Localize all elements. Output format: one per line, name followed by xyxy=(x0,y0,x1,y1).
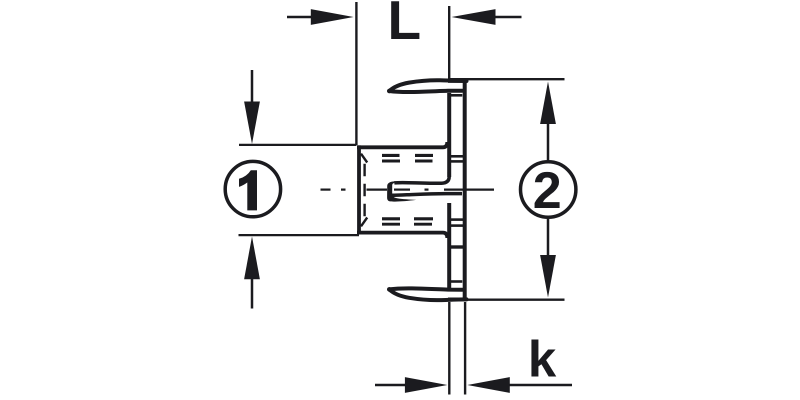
svg-text:k: k xyxy=(528,331,557,388)
svg-text:2: 2 xyxy=(533,162,562,220)
svg-text:L: L xyxy=(387,0,421,51)
